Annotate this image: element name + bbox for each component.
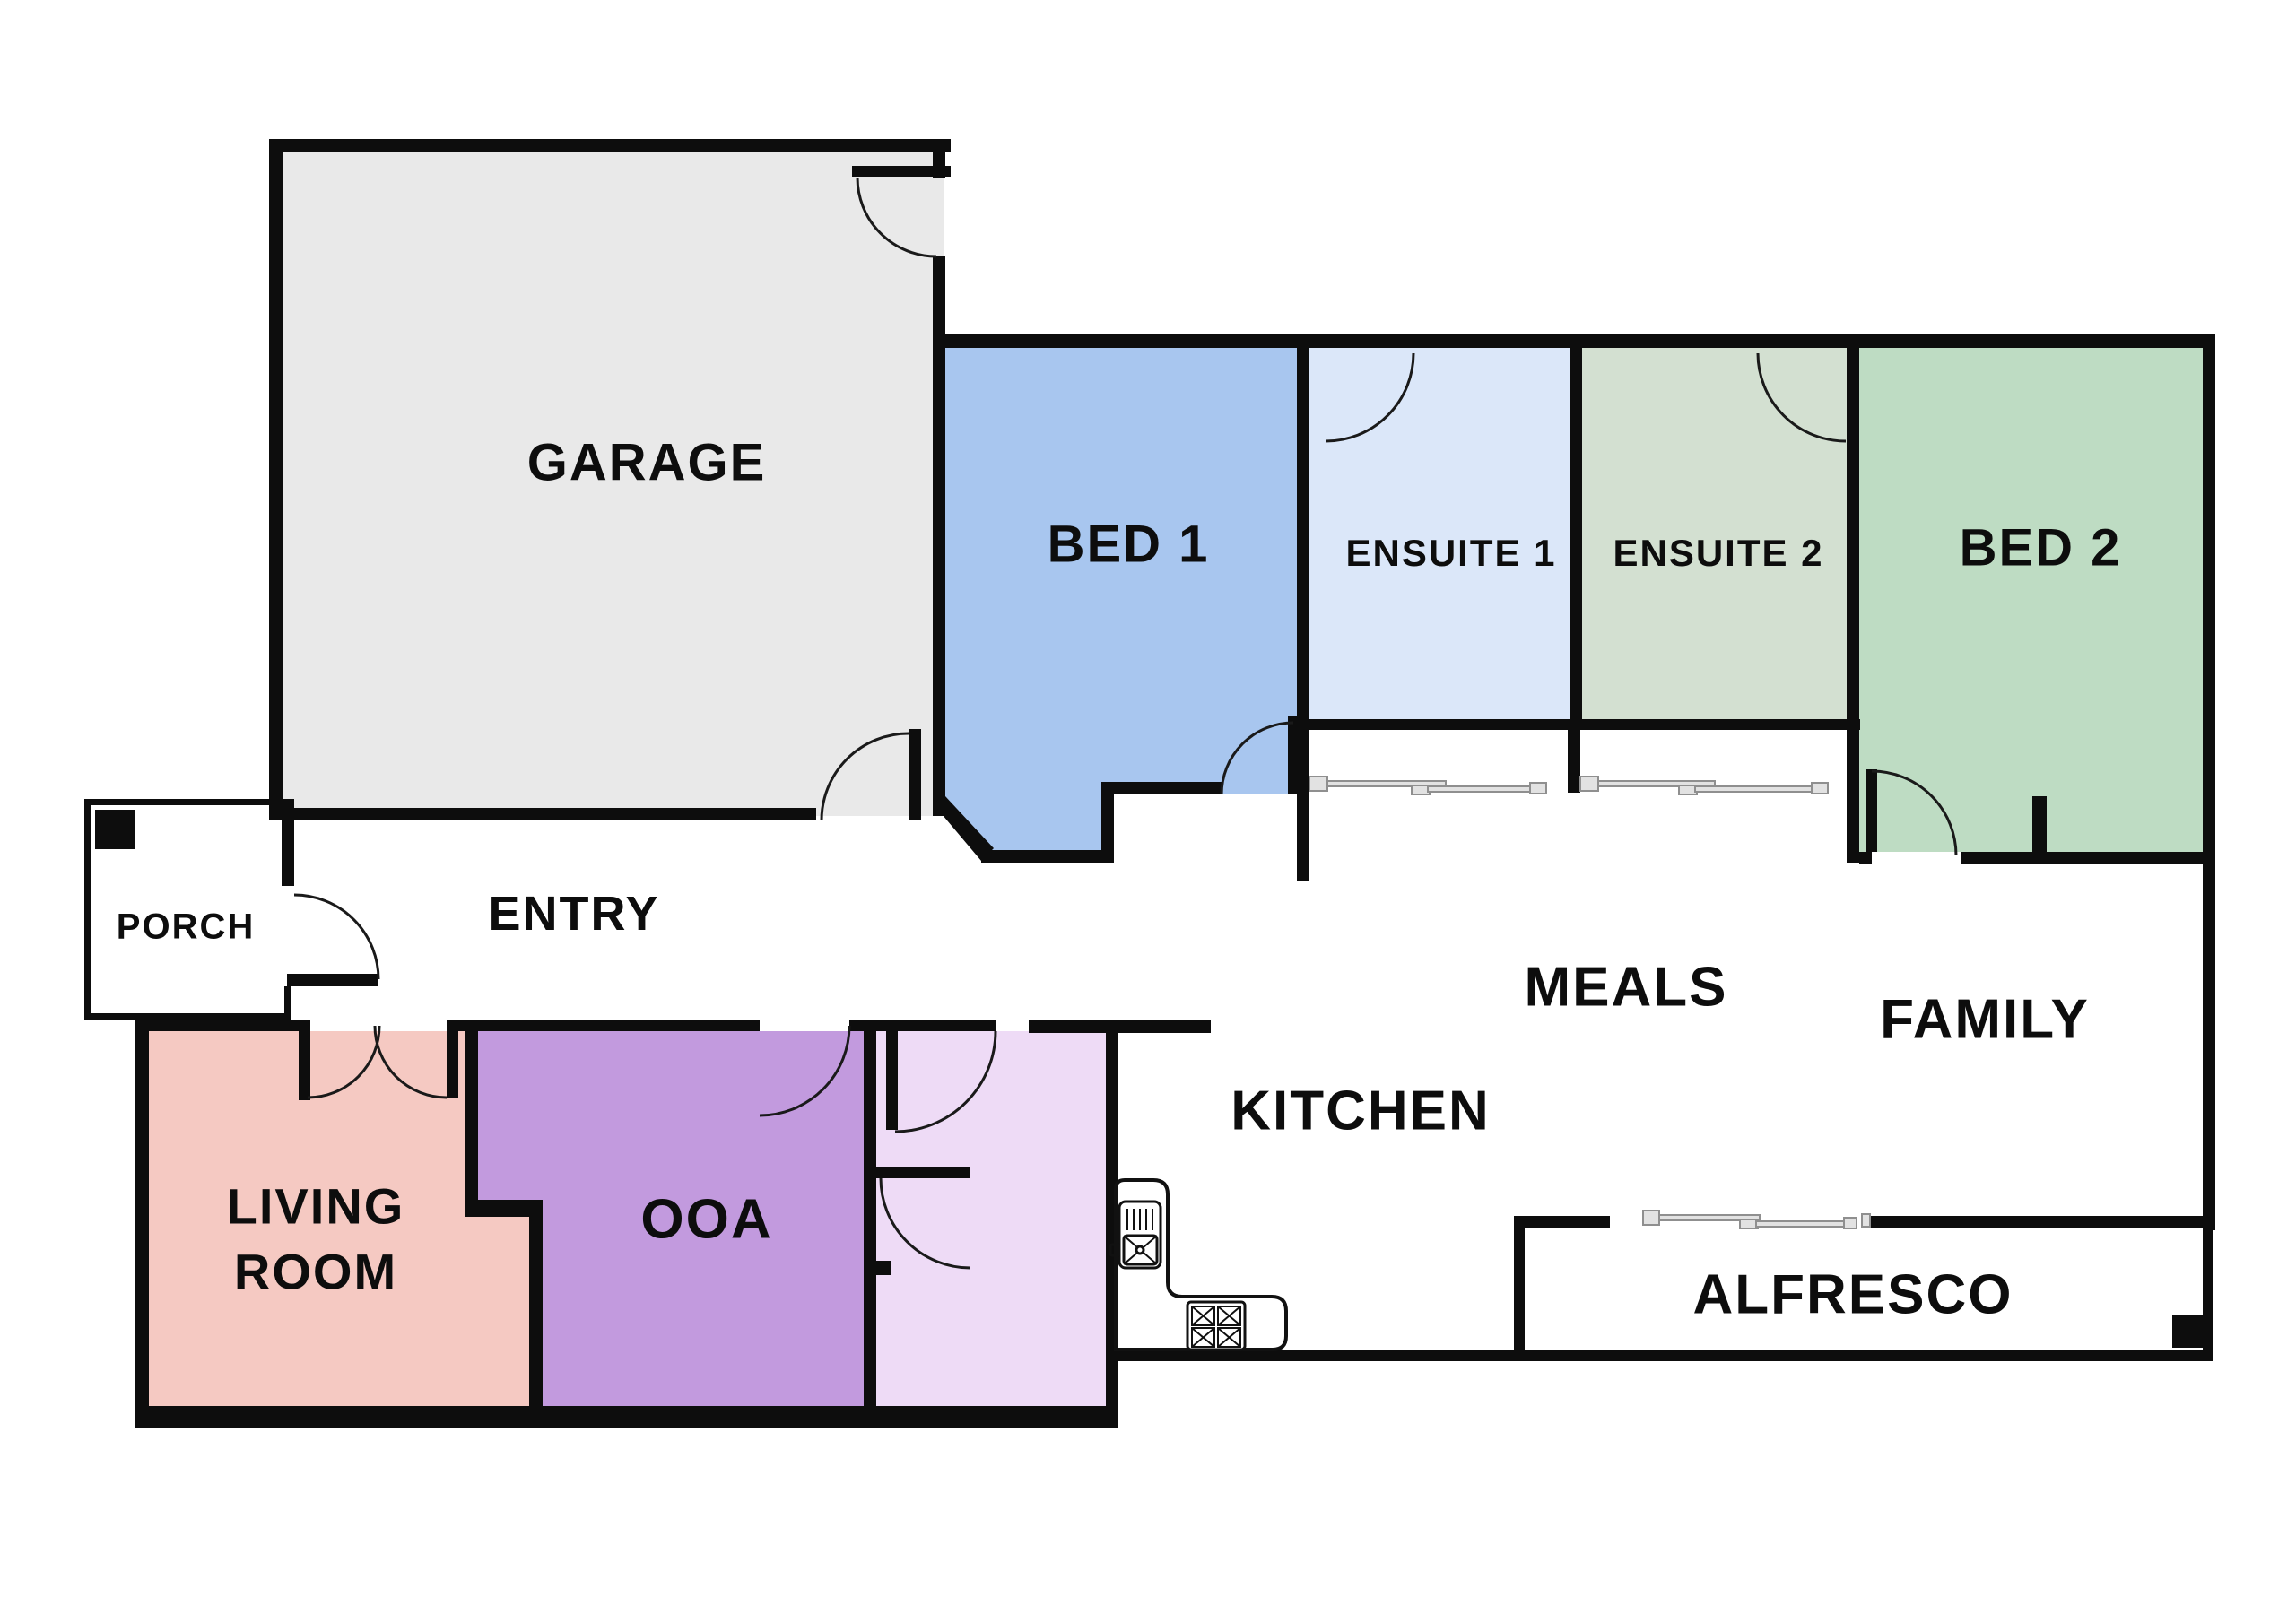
wall (1570, 348, 1582, 719)
wall (1297, 334, 1309, 881)
room-label-kitchen: KITCHEN (1231, 1080, 1491, 1143)
room-lavender-utility (876, 1031, 1106, 1406)
wall (876, 1020, 996, 1031)
slider-rail (1428, 786, 1532, 792)
wall (864, 1167, 970, 1178)
wall (529, 1217, 543, 1428)
room-label-ensuite2: ENSUITE 2 (1613, 532, 1823, 575)
room-label-garage: GARAGE (527, 433, 767, 493)
alfresco-pillar (2172, 1315, 2205, 1348)
slider-cap (1580, 777, 1598, 791)
slider-cap (1812, 783, 1828, 794)
wall (1847, 348, 1859, 863)
room-label-entry: ENTRY (488, 886, 659, 942)
floor-plan: GARAGE BED 1 ENSUITE 1 ENSUITE 2 BED 2 P… (0, 0, 2296, 1623)
room-label-ooa: OOA (640, 1188, 772, 1252)
slider-cap (1862, 1214, 1870, 1227)
slider-rail (1756, 1221, 1846, 1227)
alfresco-wall (1514, 1216, 1525, 1350)
porch-pillar (95, 810, 135, 849)
wall (458, 1020, 760, 1031)
room-bed1 (940, 348, 1297, 856)
wall (135, 1020, 308, 1031)
wall (1112, 782, 1222, 794)
wall (1514, 1216, 1610, 1228)
wall (269, 139, 951, 152)
room-label-ensuite1: ENSUITE 1 (1345, 532, 1556, 575)
floor-plan-drawing (0, 0, 2296, 1623)
door-leaf-garage-entry (909, 729, 921, 820)
wall (2203, 334, 2215, 1230)
porch-wall (84, 799, 91, 1020)
wall (287, 974, 378, 986)
room-label-living-line1: LIVING (227, 1177, 405, 1236)
room-label-family: FAMILY (1880, 988, 2090, 1052)
wall (269, 139, 283, 820)
room-label-bed2: BED 2 (1960, 518, 2122, 578)
door-leaf-utility (886, 1031, 898, 1130)
wall (465, 1200, 543, 1217)
wall (981, 850, 1112, 863)
wall (1101, 782, 1114, 863)
wall (1029, 1020, 1211, 1033)
slider-cap (1643, 1211, 1659, 1225)
kitchen-cooktop (1187, 1302, 1245, 1350)
kitchen-fixtures (1110, 1180, 1286, 1350)
wall (864, 1020, 876, 1406)
porch-wall (84, 799, 287, 805)
slider-cap (1530, 783, 1546, 794)
wall (933, 139, 945, 178)
room-bed2 (1859, 348, 2203, 852)
room-label-living-line2: ROOM (234, 1243, 397, 1301)
door-leaf-bed2 (1865, 769, 1877, 852)
wall (269, 808, 816, 820)
wall-stub (874, 1261, 891, 1275)
door-arc-front-entry (294, 895, 378, 979)
sink-drain (1136, 1246, 1144, 1254)
slider-cap (1844, 1218, 1857, 1228)
room-label-alfresco: ALFRESCO (1693, 1263, 2013, 1327)
porch-wall (284, 986, 291, 1020)
wall (933, 334, 2215, 348)
wall (135, 1020, 149, 1428)
wall (135, 1406, 1118, 1428)
wall-stub (2032, 796, 2047, 852)
wall (1870, 1216, 2205, 1228)
wall (1859, 852, 1872, 864)
room-label-porch: PORCH (117, 907, 255, 948)
wall (1568, 719, 1580, 793)
wall (282, 799, 294, 886)
slider-rail (1695, 786, 1813, 792)
door-jamb (447, 1020, 458, 1098)
porch-wall (84, 1013, 291, 1020)
room-label-bed1: BED 1 (1048, 515, 1210, 575)
wall (1961, 852, 2215, 864)
room-label-meals: MEALS (1525, 956, 1728, 1020)
door-jamb (299, 1020, 310, 1100)
wall (465, 1020, 478, 1217)
slider-cap (1309, 777, 1327, 791)
